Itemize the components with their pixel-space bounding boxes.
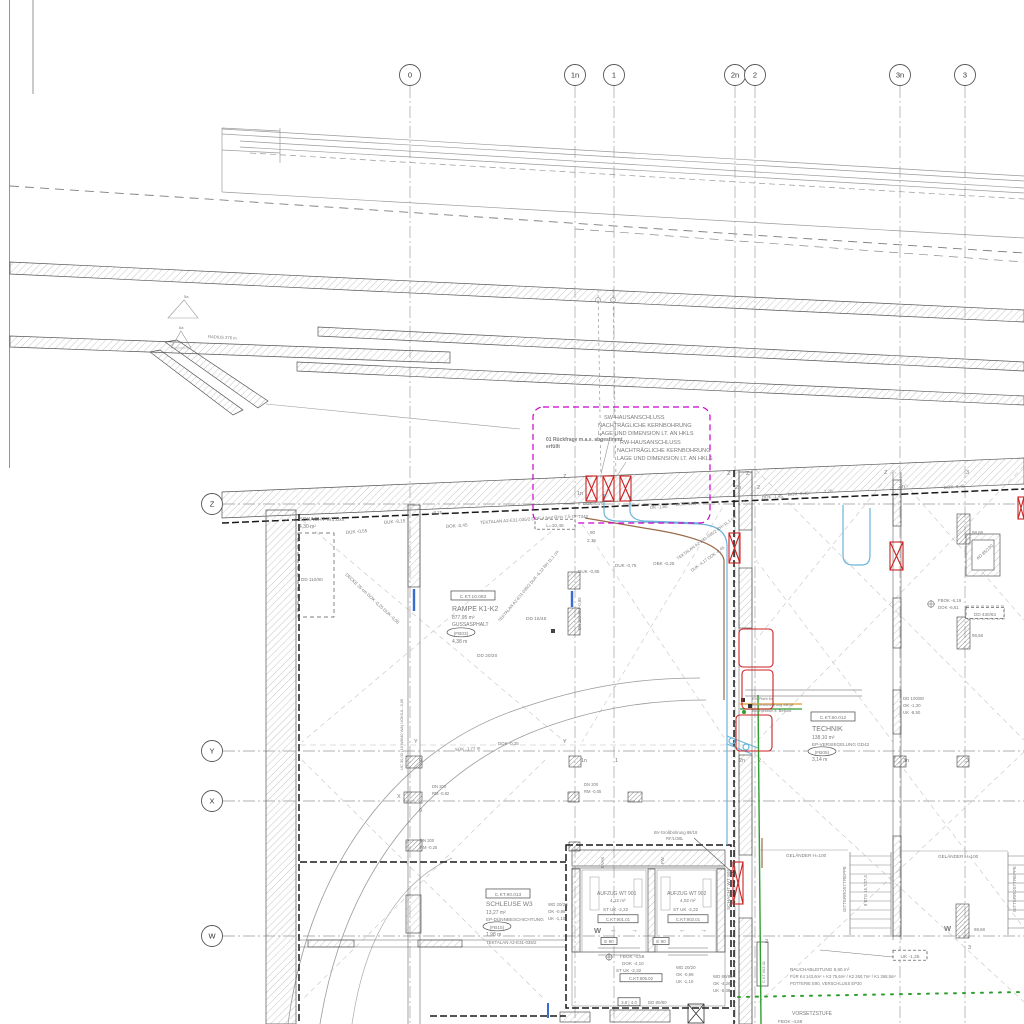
annotation-text: WD 20/20 [676,965,696,970]
survey-triangle [168,300,198,318]
grid-bubble-label: 3n [896,71,904,80]
annotation-text: SW-HAUSANSCHLUSS [604,415,665,421]
annotation-text: 13,27 m² [486,910,506,916]
annotation-text: DUK -0,85 [578,569,600,574]
annotation-text: UK -1,10 [676,979,694,984]
grid-bubble-label: Z [210,500,215,509]
annotation-text: DUK -0,55 [346,528,368,535]
elevator-block [430,845,731,1023]
annotation-text: 1n [581,758,587,764]
annotation-text: 4,38 m [452,639,467,645]
annotation-text: GITTERROSTTREPPE [1012,866,1017,912]
annotation-text: 2 [757,485,760,491]
annotation-text: 3n [903,758,909,764]
annotation-text: UK -1,25 [901,954,920,960]
annotation-text: 0 [419,808,422,814]
annotation-text: 3,8 | 4,0 [621,1000,637,1005]
annotation-text: 6a [179,325,184,330]
annotation-text: DOK -6,61 [938,605,959,610]
annotation-text: DD 80/80 [648,1000,667,1005]
slab-opening [298,533,334,617]
annotation-text: OK -1,30 [903,703,921,708]
annotation-text: WD 80/80 [713,974,733,979]
room-code-rampe: C.KT.10.083 [460,594,487,600]
annotation-text: SOK -1,77 m [455,746,481,752]
duct-opening [739,629,773,667]
annotation-text: DOK -4,10 [622,961,644,966]
annotation-text: FW [660,856,665,864]
annotation-text: 0 [419,758,422,764]
annotation-text: 3n [899,484,905,490]
annotation-text: W [594,926,602,935]
annotation-text: 3 [966,470,969,476]
annotation-text: RADIUS 276 m [208,334,237,341]
annotation-text: EVAK [600,857,605,868]
annotation-text: ST UK -2,22 [673,907,699,912]
annotation-text: UK -5,38 [713,988,731,993]
annotation-text: FBOK -6,19 [938,598,962,603]
annotation-text: 3 [968,945,971,951]
annotation-text: ← [610,927,617,934]
annotation-text: (FB03) [454,631,469,637]
annotation-text: → [631,927,638,934]
grid-bubble-label: 0 [408,71,412,80]
annotation-text: 98,68 [974,927,986,932]
annotation-text: 2n [735,485,741,491]
annotation-text: 98,68 [972,633,984,638]
rail-tracks [222,128,1024,238]
annotation-text: 5a [184,294,189,299]
room-code-schleuse: C.KT.90.013 [495,892,522,898]
annotation-text: DOK -0,45 [944,484,966,490]
annotation-text: DD 100/80 [903,696,925,701]
sw-pipe [585,518,724,700]
room-code-903: C.KT.903.01 [761,960,766,983]
annotation-text: RM -0,82 [432,791,450,796]
annotation-text: 2n [739,758,745,764]
grid-bubble-label: 3 [963,71,967,80]
annotation-text: WD 20/28 [548,902,568,907]
annotation-text: E 90 [604,939,614,944]
grid-bubble-label: X [209,797,214,806]
annotation-text: FBOK -4,58 [620,954,645,959]
annotation-text: RF/LOBL [666,836,684,841]
annotation-text: DUK -0,75 [583,501,604,506]
grid-bubble-label: W [208,932,216,941]
annotation-text: 2 [758,758,761,764]
room-label-schleuse: SCHLEUSE W3 [486,901,533,908]
annotation-text: NACHTRÄGLICHE KERNBOHRUNG [598,422,692,429]
room-code-technik: C.KT.80.012 [820,715,847,721]
room-label-rampe: RAMPE K1-K2 [452,606,498,613]
annotation-text: DN 200 [432,784,447,789]
annotation-text: DN 200 RM -0,85 [577,597,582,630]
annotation-text: L=10,45 [546,523,564,529]
annotation-text: TEKTALAN A2-E31-035/2 [486,940,537,945]
annotation-text: Y [414,739,418,745]
annotation-text: C.KT.902.01 [676,917,701,922]
annotation-text: 1 [615,758,618,764]
annotation-text: OK -4,26 [713,981,731,986]
annotation-text: 2,15 [587,538,596,543]
annotation-text: ST UK -2,22 [603,907,629,912]
room-label-aufzug-902: AUFZUG WT 902 [667,891,707,897]
annotation-text: FBOK -4,68 [778,1019,803,1024]
grid-bubble-label: 2 [753,71,757,80]
sheet-frame [10,0,34,468]
room-label-schacht-w18: SCHACHT W1.8xx [299,517,345,523]
grid-bubble-label: 2n [731,71,739,80]
annotation-text: UC 30,00 (16 W8/40 WA) UOK/UL -3,05 [399,698,404,770]
annotation-text: OK -1,80 [650,504,668,510]
grid-bubble-label: 1 [612,71,616,80]
annotation-text: 1,98 m [486,932,501,938]
annotation-text: FÜR K4 143,6m² + K3 75,6m² / K2 260,7m² … [790,974,896,979]
annotation-text: 2 [765,939,768,945]
annotation-text: RAUCHABLEITUNG 8,60 m² [790,967,850,972]
annotation-text: DD 20/20 [477,653,498,659]
drawing-canvas: 01n12n23n3ZYXWSW-HAUSANSCHLUSSNACHTRÄGLI… [0,0,1024,1024]
annotation-text: GELÄNDER H=100 [938,853,979,859]
floor-plan-svg: 01n12n23n3ZYXWSW-HAUSANSCHLUSSNACHTRÄGLI… [0,0,1024,1024]
annotation-text: UK -8,50 [903,710,921,715]
annotation-text: TEKTALAN A2-E31-035/2 RH=11,1 cm [676,514,738,561]
annotation-text: DUK -8,15 [384,518,406,525]
green-dotted-line [738,992,1024,997]
annotation-text: 3,14 m [812,757,827,763]
annotation-text: 4,02 m² [680,898,696,903]
annotation-text: DD 15/45 [526,616,547,622]
annotation-text: LAGE UND DIMENSION LT. AN HKLS [617,456,713,462]
annotation-text: BV-Großbohrung 88/18 [752,702,794,707]
annotation-text: DN 200 [584,782,599,787]
annotation-text: DOK -1,45 [762,494,784,500]
annotation-text: T340 [578,514,589,519]
annotation-text: 138,10 m² [812,735,835,741]
annotation-text: BV-Injektion lt. Befund [752,708,791,713]
annotation-text: BV-Großbohrung 88/18 [654,830,698,835]
room-label-aufzug-901: AUFZUG WT 901 [597,891,637,897]
west-wall [266,510,296,1024]
revision-note: 01 Rückfrage m.a.s. abgestimmt [546,437,623,443]
building-walls [222,458,1024,1024]
annotation-text: ST UK -2,32 [616,968,642,973]
annotation-text: 90 [590,530,596,535]
annotation-text: OK -0,98 [676,972,694,977]
annotation-text: DD 430/63 [974,612,996,617]
grid-bubble-label: Y [209,747,214,756]
annotation-text: DOK -0,45 [788,491,810,497]
annotation-text: (FB05) [815,750,830,756]
annotation-text: DD 110/80 [301,577,323,582]
annotation-text: 4,30 m² [299,524,316,530]
annotation-text: DN 200 [420,838,435,843]
annotation-text: DUK -0,75 [615,563,637,568]
annotation-text: RM -0,25 [420,845,438,850]
annotation-text: -8,25 [432,510,443,515]
annotation-text: 98,68 [972,530,984,535]
annotation-text: BV-Pfahl Nr. [752,696,774,701]
annotation-text: RW-HAUSANSCHLUSS [620,440,681,446]
annotation-text: DOK -0,45 [446,522,468,529]
annotation-text: 877,95 m² [452,615,475,621]
annotation-text: DOK -0,25 [498,741,519,746]
annotation-text: erfüllt [546,444,560,450]
annotation-text: W [944,924,952,933]
annotation-text: ← [679,927,686,934]
annotation-text: Y [563,739,567,745]
annotation-text: EP-VERSIEGELUNG GD42 [812,742,870,747]
rw-pipe [604,494,727,845]
annotation-text: TEKTALAN A2-E31-035/2 DUK -6,12 RH 11,1 … [497,549,560,623]
annotation-text: E 90 [656,939,666,944]
annotation-text: NACHTRÄGLICHE KERNBOHRUNG [617,447,711,454]
annotation-text: 9 STG 16,7/27,3 [863,875,868,906]
annotation-text: 3 [966,758,969,764]
annotation-text: OK -0,98 [548,909,566,914]
duct-opening [736,715,772,751]
annotation-text: 1,20 [824,488,833,494]
room-label-schacht-905: SCHACHT WT 905 [726,869,732,910]
annotation-text: VORSETZSTUFE [792,1011,833,1017]
annotation-text: POTTERIE E90, VERSCHLUSS EP30 [790,981,862,986]
annotation-text: DECKE 35 cm DOK -0,25 DUK -0,55 [344,572,400,625]
annotation-text: → [700,927,707,934]
annotation-text: RM -0,05 [584,789,602,794]
annotation-text: UK -1,10 [548,916,566,921]
room-label-technik: TECHNIK [812,726,843,733]
rw-pipe [843,505,870,565]
annotation-text: GITTERROSTTREPPE [842,866,847,912]
annotation-text: C.KT.901.01 [606,917,631,922]
annotation-text: DOK -1,45 [676,501,698,507]
annotation-text: EP-DÜNNBESCHICHTUNG [486,916,544,922]
annotation-text: X [397,794,401,800]
annotation-text: 4,12 m² [610,898,626,903]
annotation-text: C.KT.905.02 [629,976,654,981]
annotation-text: GELÄNDER H=100 [786,852,827,858]
annotation-text: OBK -0,25 [653,561,675,566]
property-lines [10,186,1024,262]
annotation-text: GUSSASPHALT [452,622,489,628]
annotation-text: 1n [577,491,583,497]
stairs [760,850,1024,935]
grid-bubble-label: 1n [571,71,579,80]
annotation-text: (FB15) [490,925,505,931]
retaining-walls [10,262,1024,429]
